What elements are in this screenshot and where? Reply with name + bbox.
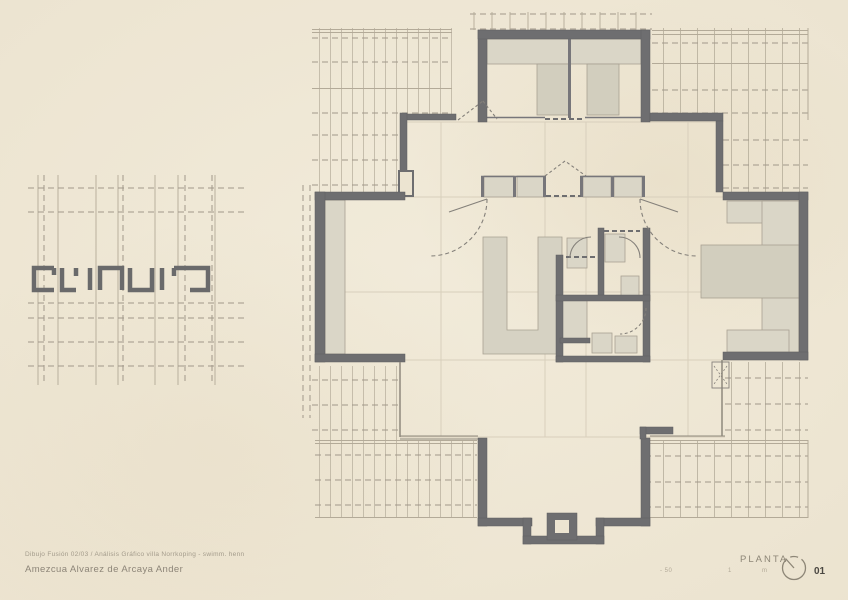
north-arrow-icon — [779, 553, 809, 583]
scale-mark: - 50 — [660, 568, 672, 574]
wall-fragments-diagram — [28, 175, 245, 385]
author-name-line: Amezcua Alvarez de Arcaya Ander — [25, 564, 183, 575]
plan-sheet: Dibujo Fusión 02/03 / Análisis Gráfico v… — [0, 0, 848, 600]
project-title-line: Dibujo Fusión 02/03 / Análisis Gráfico v… — [25, 551, 244, 558]
scale-mark: 1 — [728, 568, 732, 574]
window-walls — [400, 360, 725, 439]
floor-plan-drawing — [0, 0, 848, 600]
scale-mark: m — [762, 568, 768, 574]
sheet-number: 01 — [814, 566, 825, 577]
